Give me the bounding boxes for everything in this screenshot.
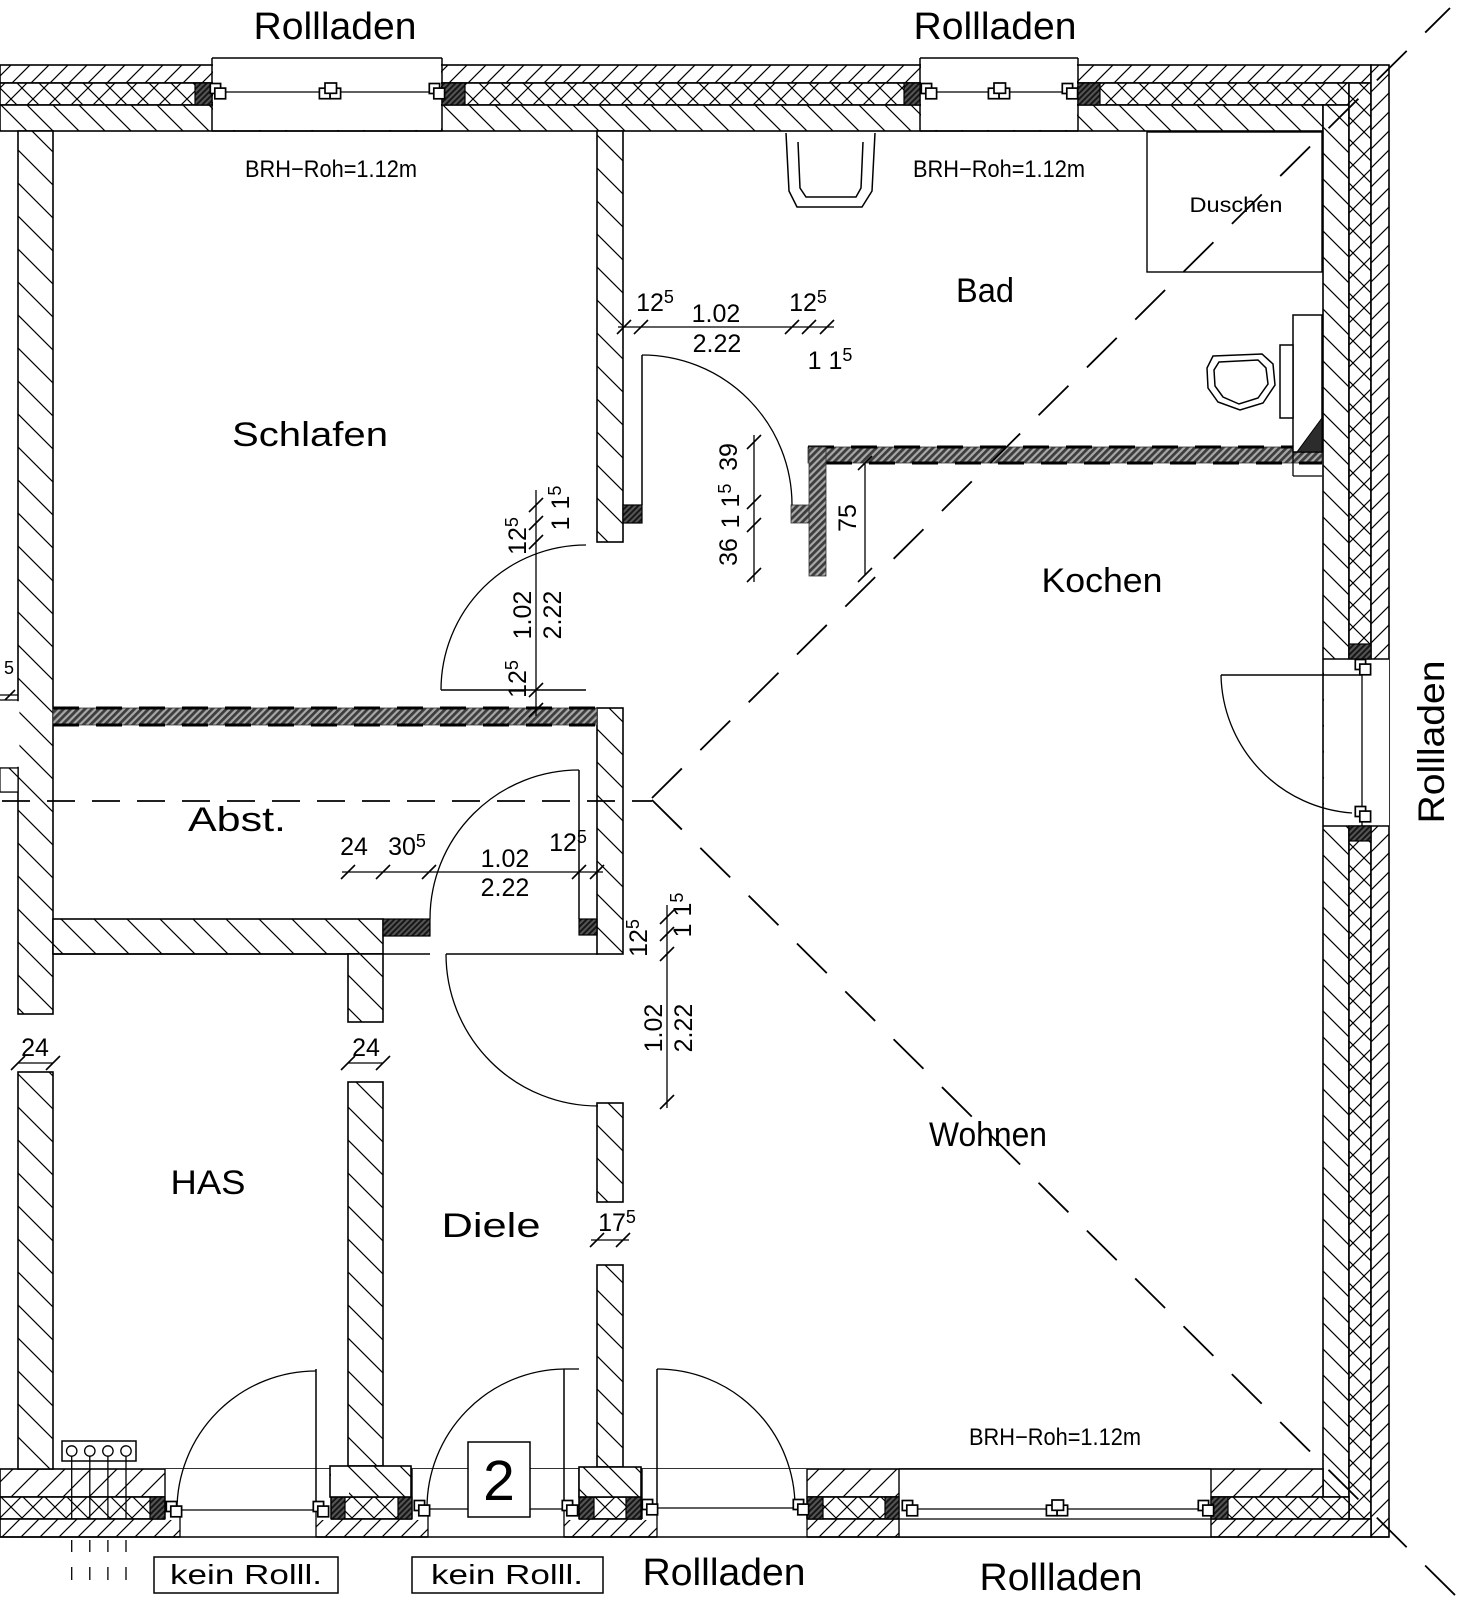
svg-text:Rollladen: Rollladen <box>254 6 417 48</box>
svg-text:1.02: 1.02 <box>640 1004 668 1053</box>
svg-text:BRH−Roh=1.12m: BRH−Roh=1.12m <box>245 156 417 183</box>
svg-text:Wohnen: Wohnen <box>929 1116 1047 1154</box>
svg-text:36: 36 <box>715 538 743 566</box>
svg-text:2.22: 2.22 <box>693 330 742 358</box>
svg-text:kein Rolll.: kein Rolll. <box>431 1559 583 1590</box>
svg-text:2.22: 2.22 <box>539 591 567 640</box>
svg-text:Duschen: Duschen <box>1190 194 1283 217</box>
svg-text:Kochen: Kochen <box>1042 562 1163 600</box>
svg-text:Diele: Diele <box>442 1207 541 1245</box>
svg-text:Rollladen: Rollladen <box>980 1557 1143 1599</box>
svg-text:2.22: 2.22 <box>481 874 530 902</box>
svg-text:Rollladen: Rollladen <box>914 6 1077 48</box>
svg-text:Bad: Bad <box>956 272 1014 310</box>
svg-text:Rollladen: Rollladen <box>1411 661 1452 824</box>
svg-text:2.22: 2.22 <box>670 1004 698 1053</box>
svg-text:1.02: 1.02 <box>692 300 741 328</box>
svg-text:kein Rolll.: kein Rolll. <box>170 1559 322 1590</box>
svg-text:24: 24 <box>352 1034 380 1062</box>
svg-text:24: 24 <box>340 833 368 861</box>
svg-text:5: 5 <box>4 658 14 678</box>
svg-text:1.02: 1.02 <box>509 591 537 640</box>
svg-text:BRH−Roh=1.12m: BRH−Roh=1.12m <box>969 1424 1141 1451</box>
svg-text:Rollladen: Rollladen <box>643 1552 806 1594</box>
svg-text:HAS: HAS <box>171 1164 246 1202</box>
svg-text:1.02: 1.02 <box>481 845 530 873</box>
svg-text:Abst.: Abst. <box>188 801 286 839</box>
svg-text:2: 2 <box>483 1449 515 1513</box>
svg-text:Schlafen: Schlafen <box>232 416 388 454</box>
svg-text:BRH−Roh=1.12m: BRH−Roh=1.12m <box>913 156 1085 183</box>
svg-text:39: 39 <box>715 443 743 471</box>
svg-text:24: 24 <box>21 1034 49 1062</box>
svg-text:75: 75 <box>834 504 862 532</box>
